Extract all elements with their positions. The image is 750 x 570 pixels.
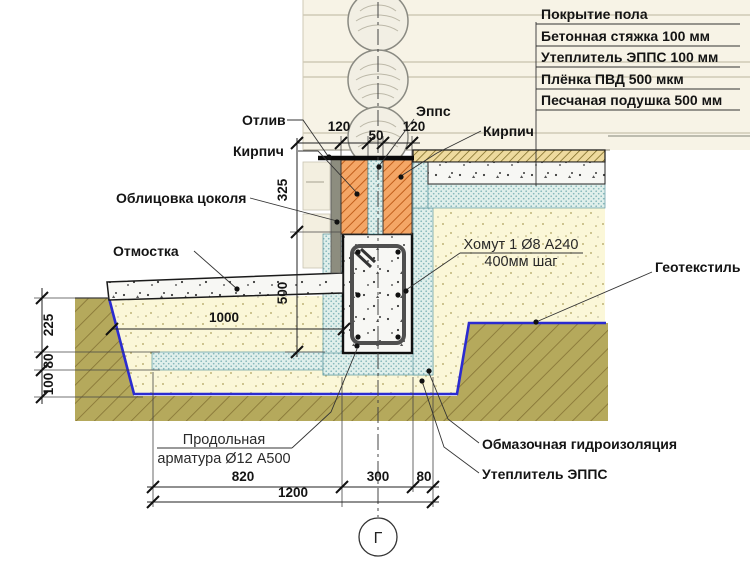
brick-right bbox=[383, 160, 412, 234]
legend-item: Утеплитель ЭППС 100 мм bbox=[541, 49, 718, 65]
label-otmostka: Отмостка bbox=[113, 243, 179, 259]
legend-item: Песчаная подушка 500 мм bbox=[541, 92, 722, 108]
label-uteplitel-epps: Утеплитель ЭППС bbox=[482, 466, 608, 482]
axis-marker: Г bbox=[359, 518, 397, 556]
xps-floor-vertical bbox=[413, 162, 428, 208]
dim-1200: 1200 bbox=[278, 485, 308, 500]
dim-1000: 1000 bbox=[209, 310, 239, 325]
dim-50: 50 bbox=[368, 128, 383, 143]
legend-item: Бетонная стяжка 100 мм bbox=[541, 28, 710, 44]
label-otliv: Отлив bbox=[242, 112, 286, 128]
dim-120-right: 120 bbox=[403, 119, 426, 134]
label-epps: Эппс bbox=[416, 103, 451, 119]
xps-floor-layer bbox=[428, 184, 605, 208]
dim-100: 100 bbox=[41, 373, 56, 396]
dim-325: 325 bbox=[275, 178, 290, 201]
brick-left bbox=[341, 160, 368, 234]
legend-item: Покрытие пола bbox=[541, 6, 648, 22]
xps-beam-wrap-right bbox=[413, 208, 433, 375]
dim-300: 300 bbox=[367, 469, 390, 484]
legend-item: Плёнка ПВД 500 мкм bbox=[541, 71, 684, 87]
dim-80-bottom: 80 bbox=[416, 469, 431, 484]
foundation-section-drawing: Покрытие пола Бетонная стяжка 100 мм Уте… bbox=[0, 0, 750, 570]
label-prodolnaya-line1: Продольная bbox=[183, 432, 265, 448]
label-kirpich-left: Кирпич bbox=[233, 143, 284, 159]
axis-marker-label: Г bbox=[374, 530, 383, 547]
floor-layers bbox=[413, 150, 605, 184]
dim-820: 820 bbox=[232, 469, 255, 484]
label-geotekstil: Геотекстиль bbox=[655, 259, 741, 275]
label-obmazochnaya: Обмазочная гидроизоляция bbox=[482, 436, 677, 452]
dim-225: 225 bbox=[41, 313, 56, 336]
label-oblicovka-cokolya: Облицовка цоколя bbox=[116, 190, 246, 206]
label-prodolnaya-line2: арматура Ø12 А500 bbox=[157, 451, 290, 467]
label-homut-line1: Хомут 1 Ø8 А240 bbox=[464, 237, 579, 253]
dim-80-left: 80 bbox=[41, 353, 56, 368]
dim-120-left: 120 bbox=[328, 119, 351, 134]
label-kirpich-right: Кирпич bbox=[483, 123, 534, 139]
blind-area bbox=[107, 273, 343, 300]
corner-board bbox=[303, 162, 330, 210]
floor-finish-layer bbox=[413, 150, 605, 162]
xps-under-blind-area bbox=[152, 352, 330, 370]
label-homut-line2: 400мм шаг bbox=[484, 254, 557, 270]
concrete-screed bbox=[428, 162, 605, 184]
plinth-cladding bbox=[331, 158, 341, 273]
dim-500: 500 bbox=[275, 282, 290, 305]
foundation-detail-page: Покрытие пола Бетонная стяжка 100 мм Уте… bbox=[0, 0, 750, 570]
wall-xps-strip bbox=[368, 160, 383, 234]
